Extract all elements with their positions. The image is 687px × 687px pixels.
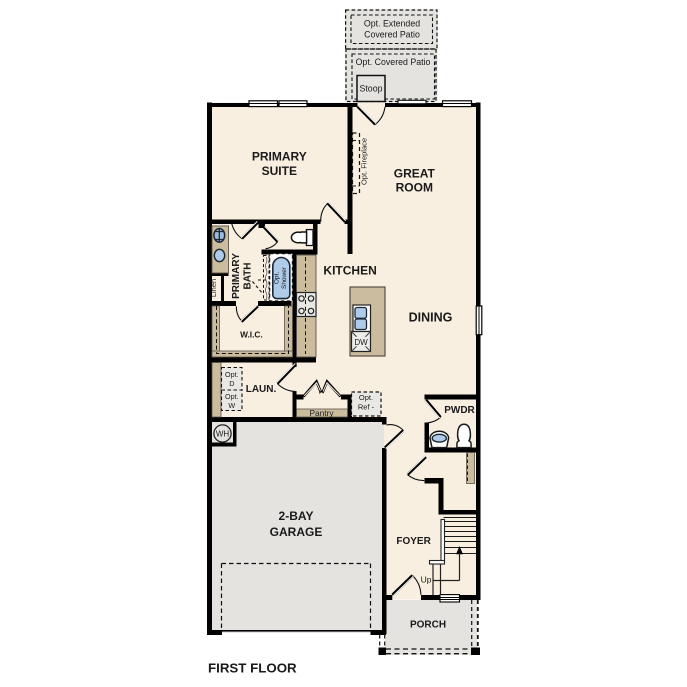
svg-text:GREAT: GREAT — [394, 166, 436, 180]
svg-text:Shower: Shower — [281, 266, 288, 289]
svg-text:WH: WH — [216, 430, 230, 439]
svg-text:ROOM: ROOM — [396, 180, 433, 194]
svg-text:PRIMARY: PRIMARY — [252, 149, 307, 163]
svg-text:KITCHEN: KITCHEN — [323, 263, 376, 277]
svg-text:2-BAY: 2-BAY — [279, 509, 314, 523]
svg-text:Opt. Extended: Opt. Extended — [364, 19, 420, 29]
svg-text:BATH: BATH — [243, 262, 254, 289]
svg-text:Up: Up — [421, 575, 432, 585]
svg-text:Covered Patio: Covered Patio — [364, 29, 420, 39]
svg-text:FOYER: FOYER — [396, 536, 431, 547]
svg-text:FIRST FLOOR: FIRST FLOOR — [208, 661, 297, 676]
svg-text:PWDR: PWDR — [444, 405, 475, 416]
svg-text:W: W — [228, 401, 235, 410]
svg-text:DINING: DINING — [409, 311, 453, 325]
svg-text:Stoop: Stoop — [360, 84, 383, 94]
svg-text:SUITE: SUITE — [262, 164, 297, 178]
svg-text:Pantry: Pantry — [310, 408, 335, 418]
svg-text:W.I.C.: W.I.C. — [240, 330, 263, 340]
svg-text:Opt. Covered Patio: Opt. Covered Patio — [356, 57, 431, 67]
svg-text:Linen: Linen — [209, 279, 218, 297]
svg-text:PRIMARY: PRIMARY — [231, 253, 242, 299]
svg-text:Opt.: Opt. — [225, 392, 239, 401]
svg-text:LAUN.: LAUN. — [246, 384, 277, 395]
svg-text:Opt.: Opt. — [359, 393, 373, 402]
svg-text:Opt. Fireplace: Opt. Fireplace — [359, 138, 368, 185]
svg-text:D: D — [229, 379, 234, 388]
svg-text:Opt.: Opt. — [274, 272, 281, 284]
svg-text:Ref -: Ref - — [358, 403, 375, 412]
svg-text:GARAGE: GARAGE — [270, 525, 323, 539]
svg-text:Opt.: Opt. — [225, 370, 239, 379]
svg-text:DW: DW — [354, 338, 368, 347]
svg-text:PORCH: PORCH — [410, 620, 446, 631]
